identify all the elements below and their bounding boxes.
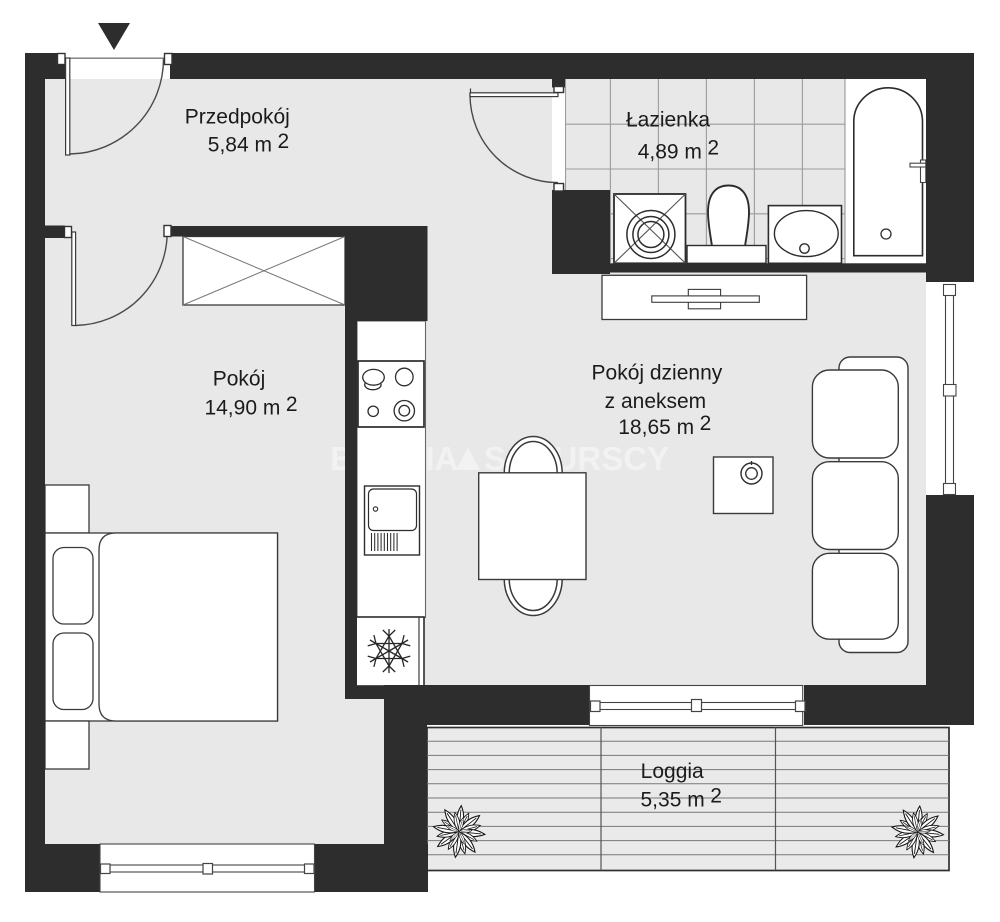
svg-text:z aneksem: z aneksem bbox=[605, 390, 707, 413]
svg-text:Loggia: Loggia bbox=[641, 760, 704, 783]
svg-text:Pokój dzienny: Pokój dzienny bbox=[592, 362, 723, 385]
svg-text:5,84 m2: 5,84 m2 bbox=[208, 130, 289, 157]
svg-text:5,35 m2: 5,35 m2 bbox=[641, 785, 722, 812]
svg-text:4,89 m2: 4,89 m2 bbox=[638, 137, 719, 164]
svg-text:Łazienka: Łazienka bbox=[626, 108, 710, 131]
svg-text:Pokój: Pokój bbox=[213, 367, 266, 390]
svg-text:Przedpokój: Przedpokój bbox=[185, 106, 290, 129]
